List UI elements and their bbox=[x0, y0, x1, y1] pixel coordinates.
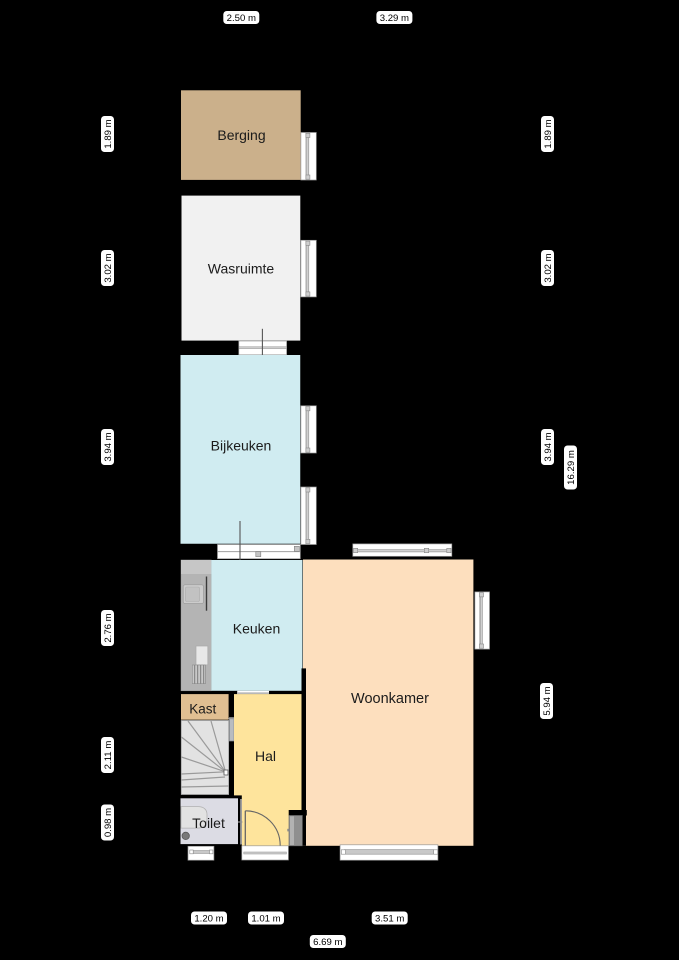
svg-text:Toilet: Toilet bbox=[192, 815, 225, 831]
svg-text:3.51 m: 3.51 m bbox=[375, 914, 404, 925]
svg-text:1.89 m: 1.89 m bbox=[103, 119, 114, 148]
svg-text:3.29 m: 3.29 m bbox=[380, 13, 409, 24]
svg-text:1.01 m: 1.01 m bbox=[251, 914, 280, 925]
svg-text:1.89 m: 1.89 m bbox=[543, 119, 554, 148]
svg-text:Bijkeuken: Bijkeuken bbox=[211, 438, 272, 454]
svg-text:1.20 m: 1.20 m bbox=[194, 914, 223, 925]
svg-text:16.29 m: 16.29 m bbox=[566, 450, 577, 485]
svg-text:Kast: Kast bbox=[189, 702, 216, 717]
svg-text:0.98 m: 0.98 m bbox=[103, 808, 114, 837]
svg-text:5.94 m: 5.94 m bbox=[542, 686, 553, 715]
svg-text:Keuken: Keuken bbox=[233, 621, 280, 637]
svg-text:3.02 m: 3.02 m bbox=[543, 253, 554, 282]
svg-text:Wasruimte: Wasruimte bbox=[208, 261, 275, 277]
svg-text:3.02 m: 3.02 m bbox=[103, 253, 114, 282]
svg-text:6.69 m: 6.69 m bbox=[313, 937, 342, 948]
svg-text:2.11 m: 2.11 m bbox=[103, 741, 114, 770]
svg-text:3.94 m: 3.94 m bbox=[103, 432, 114, 461]
svg-text:Hal: Hal bbox=[255, 748, 276, 764]
svg-text:2.76 m: 2.76 m bbox=[103, 613, 114, 642]
svg-text:Berging: Berging bbox=[217, 127, 265, 143]
svg-text:Woonkamer: Woonkamer bbox=[351, 691, 429, 707]
svg-text:3.94 m: 3.94 m bbox=[543, 432, 554, 461]
svg-text:2.50 m: 2.50 m bbox=[227, 13, 256, 24]
